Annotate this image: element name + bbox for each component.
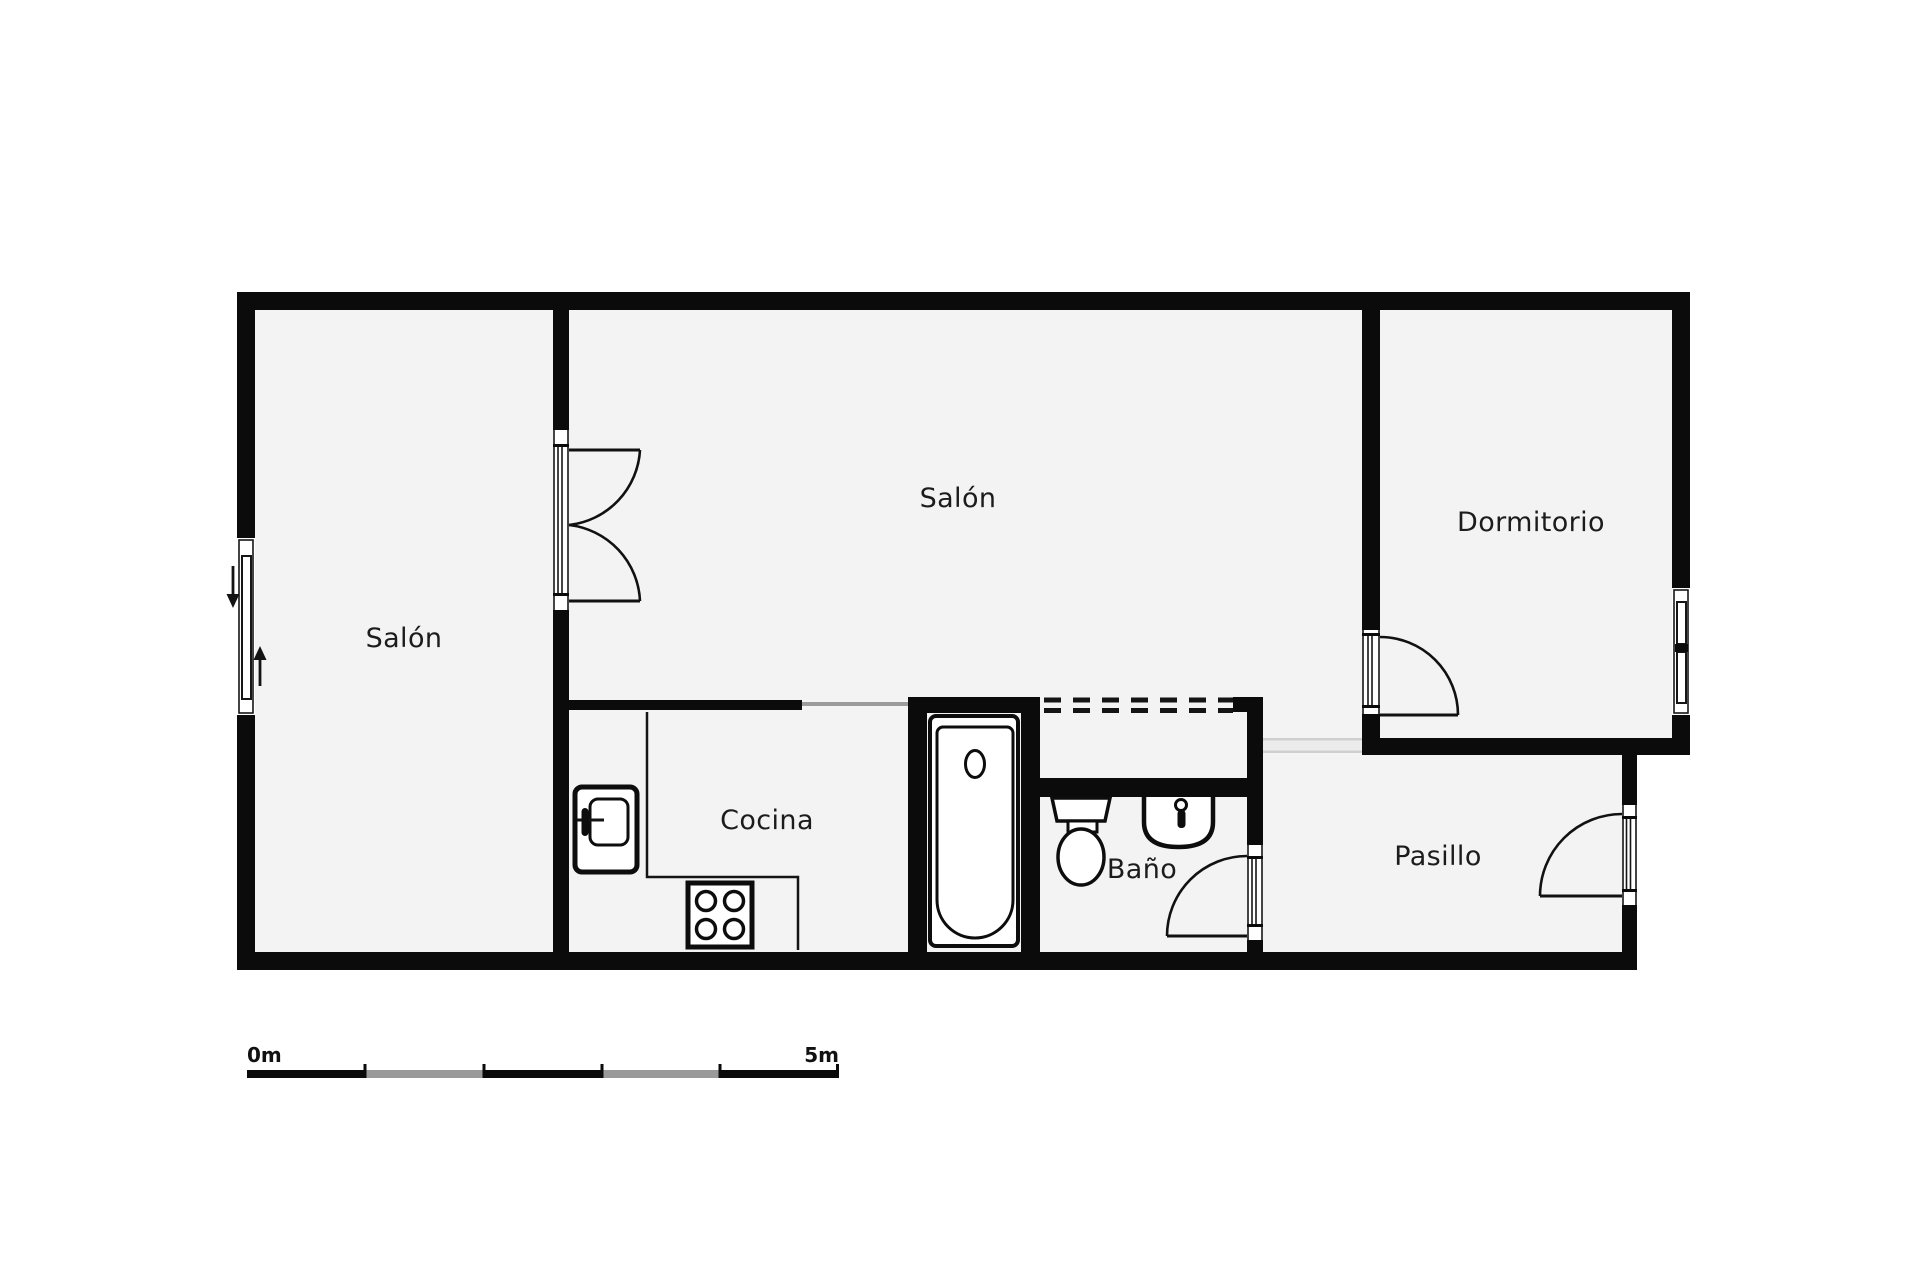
wall-salon-left-upper [553,310,569,430]
wall-bottom [237,952,1637,970]
wall-top [237,292,1690,310]
washbasin-icon [1144,797,1213,847]
wall-pasillo-right-lower [1622,905,1637,952]
label-cocina: Cocina [720,805,814,836]
bathtub-drain-icon [966,751,985,778]
wall-salon-left-lower [553,610,569,952]
wall-cocina-top [553,700,802,710]
label-bano: Baño [1107,854,1177,885]
open-passage-line-top [1263,738,1362,741]
wall-dormitorio-left-upper [1362,310,1380,630]
stove-icon [688,883,752,947]
label-pasillo: Pasillo [1394,841,1482,872]
wall-bano-divider [1040,778,1263,797]
bathtub-icon [930,716,1018,946]
entry-window-left [237,538,255,715]
wall-left-upper [237,292,255,538]
kitchen-sink-icon [575,787,637,872]
scale-bar: 0m 5m [247,1043,839,1078]
toilet-icon [1052,798,1110,885]
floorplan: Salón Salón Dormitorio Cocina Baño Pasil… [0,0,1920,1280]
wall-pasillo-right-upper [1622,753,1637,805]
wall-right-upper [1672,292,1690,588]
wall-tub-top [908,697,1040,713]
label-salon-main: Salón [920,483,997,514]
window-dormitorio [1672,588,1690,715]
wall-bano-right [1247,697,1263,845]
label-salon-left: Salón [366,623,443,654]
floorplan-page: Salón Salón Dormitorio Cocina Baño Pasil… [0,0,1920,1280]
scale-start-label: 0m [247,1043,282,1067]
wall-bano-right-bottomstub [1247,940,1263,952]
wall-dormitorio-left-stub [1362,714,1380,740]
open-boundary-cocina [802,702,908,706]
scale-end-label: 5m [804,1043,839,1067]
wall-dormitorio-bottom [1362,738,1690,755]
wall-tub-right [1021,697,1040,952]
wall-tub-left [908,697,927,952]
wall-left-lower [237,715,255,970]
open-passage-line-bottom [1263,751,1362,754]
basin-faucet-icon [1176,800,1187,811]
label-dormitorio: Dormitorio [1457,507,1605,538]
